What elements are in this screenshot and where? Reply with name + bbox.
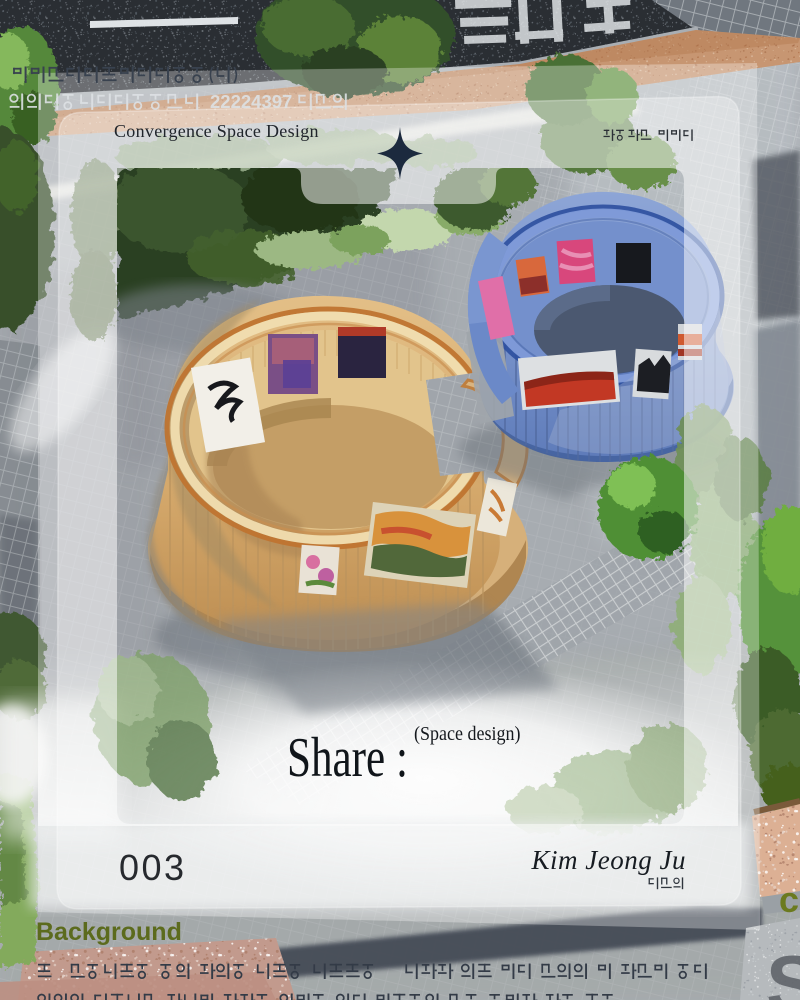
svg-text:22224397: 22224397 (210, 91, 292, 112)
